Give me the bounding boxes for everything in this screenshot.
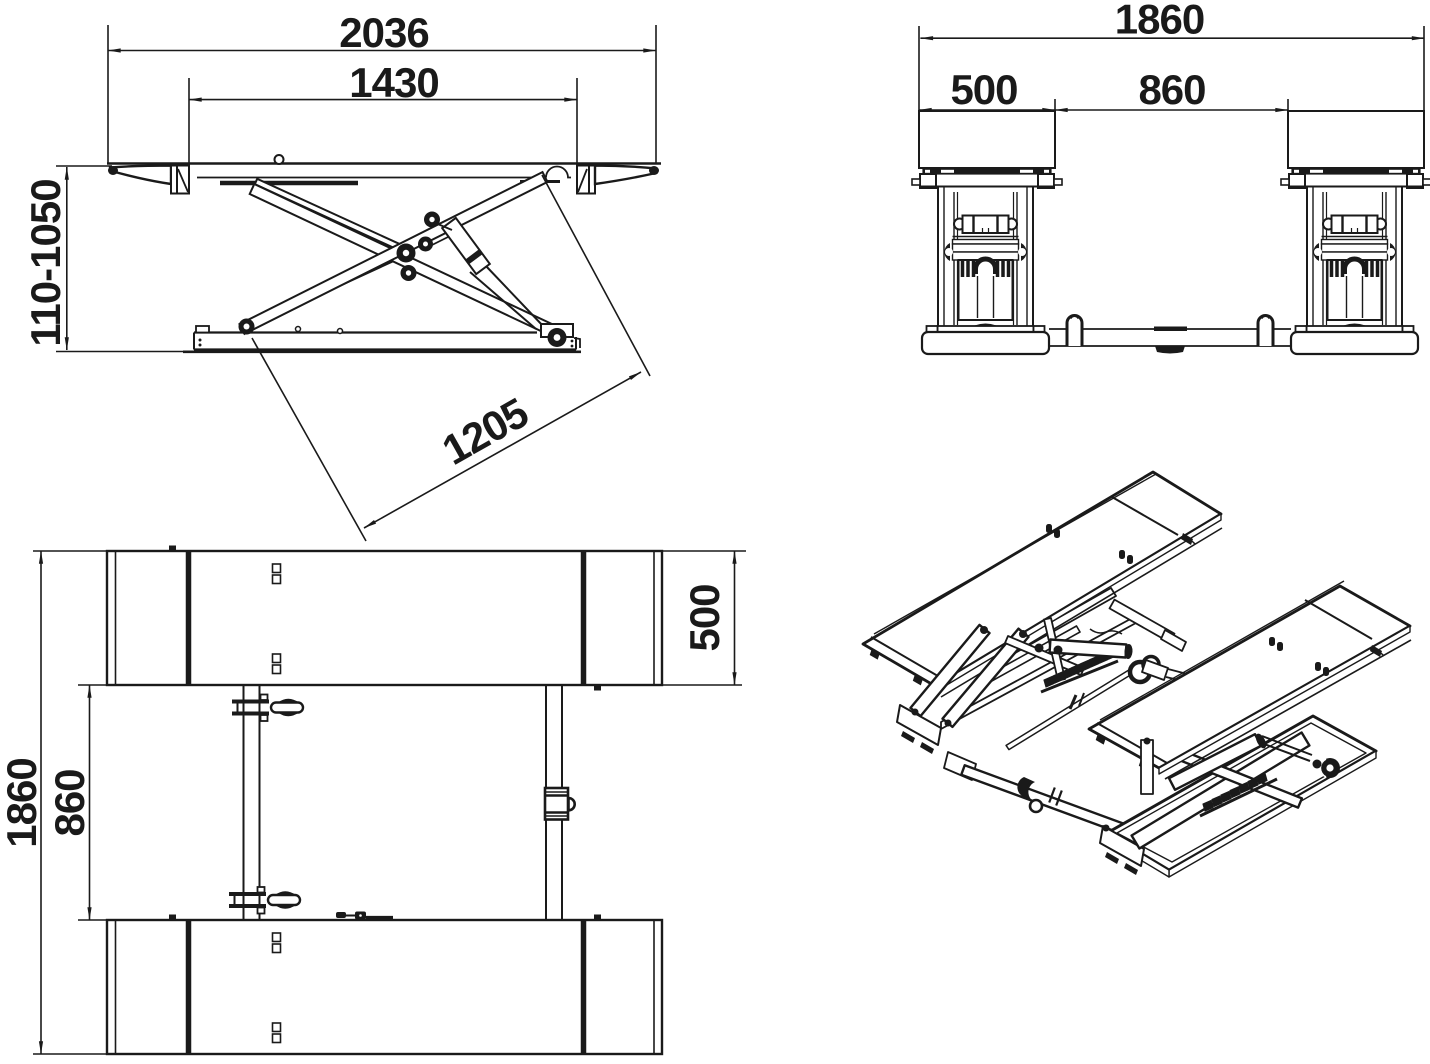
svg-text:1205: 1205 [434, 389, 536, 474]
svg-text:110-1050: 110-1050 [22, 179, 69, 346]
svg-text:1860: 1860 [0, 758, 45, 847]
svg-text:860: 860 [46, 769, 93, 836]
svg-text:1860: 1860 [1115, 0, 1204, 42]
svg-text:860: 860 [1138, 66, 1205, 113]
svg-text:500: 500 [681, 584, 728, 651]
svg-text:500: 500 [950, 66, 1017, 113]
svg-text:2036: 2036 [339, 9, 428, 56]
